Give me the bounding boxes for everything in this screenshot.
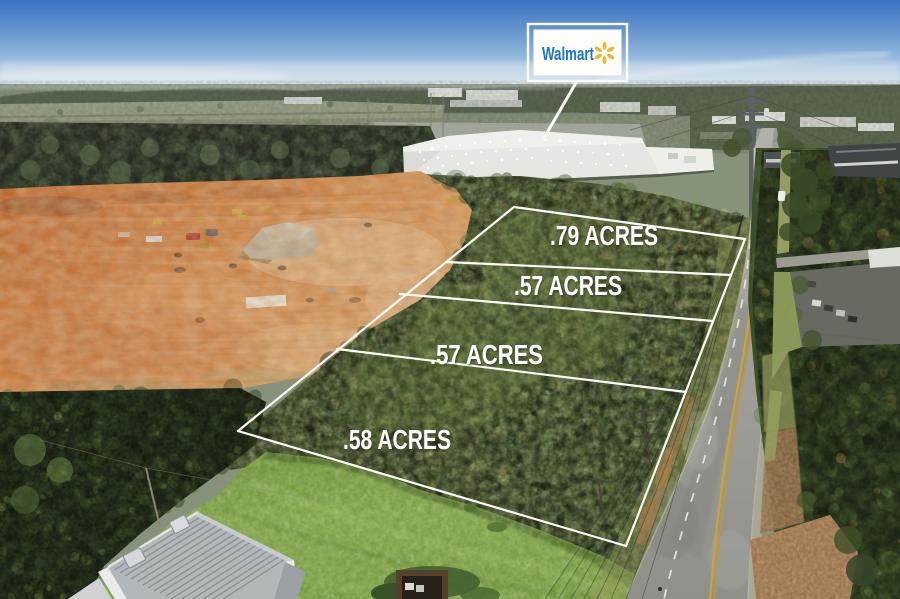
svg-text:.58 ACRES: .58 ACRES	[343, 424, 451, 455]
svg-text:.57 ACRES: .57 ACRES	[514, 270, 622, 301]
svg-text:.79 ACRES: .79 ACRES	[550, 220, 658, 251]
svg-text:Walmart: Walmart	[542, 44, 594, 64]
svg-text:.57 ACRES: .57 ACRES	[430, 339, 543, 370]
